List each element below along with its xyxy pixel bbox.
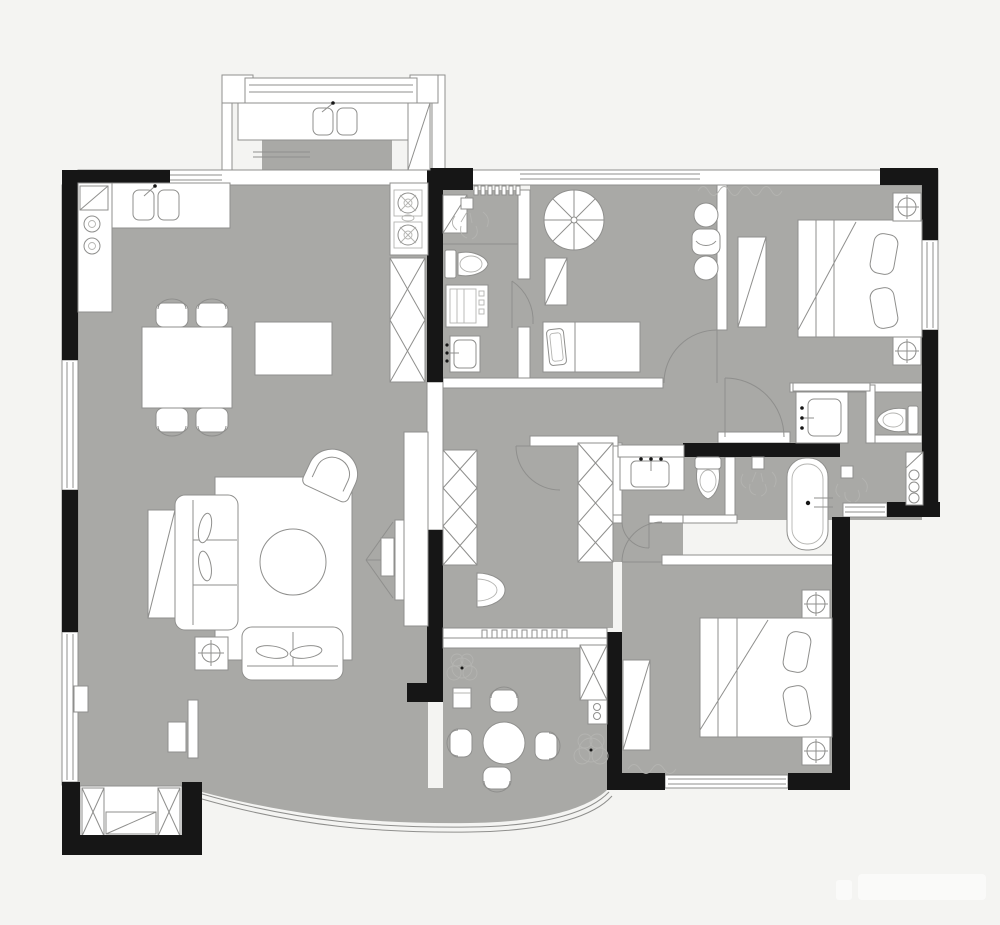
- round-coffee-table: [260, 529, 326, 595]
- kitchen-corner-sink: [80, 186, 108, 210]
- barrel-side-table: [694, 203, 718, 227]
- nightstand-lamp: [893, 337, 921, 365]
- window-left-upper: [62, 360, 78, 490]
- tv-feature-wall: [404, 432, 428, 626]
- floor-plan-page: [0, 0, 1000, 925]
- three-seat-sofa: [175, 495, 238, 630]
- sofa-side-console: [148, 510, 175, 618]
- basin-1: [445, 336, 480, 372]
- kitchen-gas-cooktop: [390, 183, 428, 255]
- wall-suite-south: [683, 515, 737, 523]
- wardrobe-bedroom3: [623, 660, 650, 750]
- single-bed: [543, 322, 640, 372]
- nightstand-lamp: [802, 737, 830, 765]
- dining-chair: [156, 299, 188, 327]
- window-mullion-tab: [74, 686, 88, 712]
- wall-tv-spine: [427, 382, 443, 530]
- tv-panel: [395, 520, 404, 600]
- bay-window-seat: [80, 786, 182, 838]
- window-master-east: [922, 240, 938, 330]
- patio-chair: [447, 729, 472, 757]
- kids-lounge-chair: [692, 229, 720, 255]
- wardrobe-master: [738, 237, 766, 327]
- floor-lamp: [195, 637, 228, 670]
- double-bed-bedroom3: [700, 618, 832, 737]
- nightstand-lamp: [893, 193, 921, 221]
- floor-balcony-curve: [202, 788, 607, 823]
- floor-plan-drawing: [0, 0, 1000, 925]
- shelf-cabinet: [906, 452, 923, 505]
- utility-tall-cabinet: [408, 103, 430, 170]
- patio-chair: [490, 687, 518, 712]
- wall-top-right: [445, 170, 938, 185]
- vanity-shelf: [793, 383, 870, 391]
- wall-master-door-stub: [718, 432, 790, 443]
- bathtub: [787, 458, 833, 550]
- patio-chair: [483, 767, 511, 792]
- wall-kids-east: [717, 185, 727, 330]
- dining-table: [142, 327, 232, 408]
- patio-chair: [535, 732, 560, 760]
- kids-side-table: [545, 258, 567, 305]
- balcony-appliance: [588, 700, 607, 724]
- wall-bath2-east: [725, 457, 735, 523]
- balcony-x-cabinet: [580, 645, 607, 700]
- dining-chair: [196, 299, 228, 327]
- storage-closet-east: [578, 443, 613, 562]
- wall-under-toilet: [875, 435, 922, 443]
- island-sideboard: [255, 322, 332, 375]
- watermark: [836, 874, 986, 900]
- wall-kids-south: [443, 378, 663, 388]
- parasol-decor: [544, 190, 604, 250]
- window-bedroom3-south: [665, 775, 788, 788]
- loveseat: [242, 627, 343, 680]
- storage-closet-west: [443, 450, 477, 565]
- vanity-master: [796, 392, 848, 443]
- wall-bath1-right-upper: [518, 190, 530, 279]
- window-utility-top: [245, 78, 417, 103]
- window-masterbath-south: [843, 503, 887, 517]
- dining-chair: [156, 408, 188, 436]
- floor-hall-nook: [613, 382, 733, 448]
- kitchen-pantry-x-cabinet: [390, 258, 425, 382]
- double-bed-master: [798, 220, 922, 337]
- vanity-bath2: [618, 445, 684, 490]
- tv-soundbar: [381, 538, 394, 576]
- barrel-side-table: [694, 256, 718, 280]
- balcony-round-table: [483, 722, 525, 764]
- wall-toilet-niche: [866, 385, 875, 443]
- entry-threshold-hatch: [474, 186, 520, 195]
- dining-chair: [196, 408, 228, 436]
- nightstand-lamp: [802, 590, 830, 618]
- washing-machine: [446, 285, 488, 327]
- wall-bedroom3-north: [662, 555, 838, 565]
